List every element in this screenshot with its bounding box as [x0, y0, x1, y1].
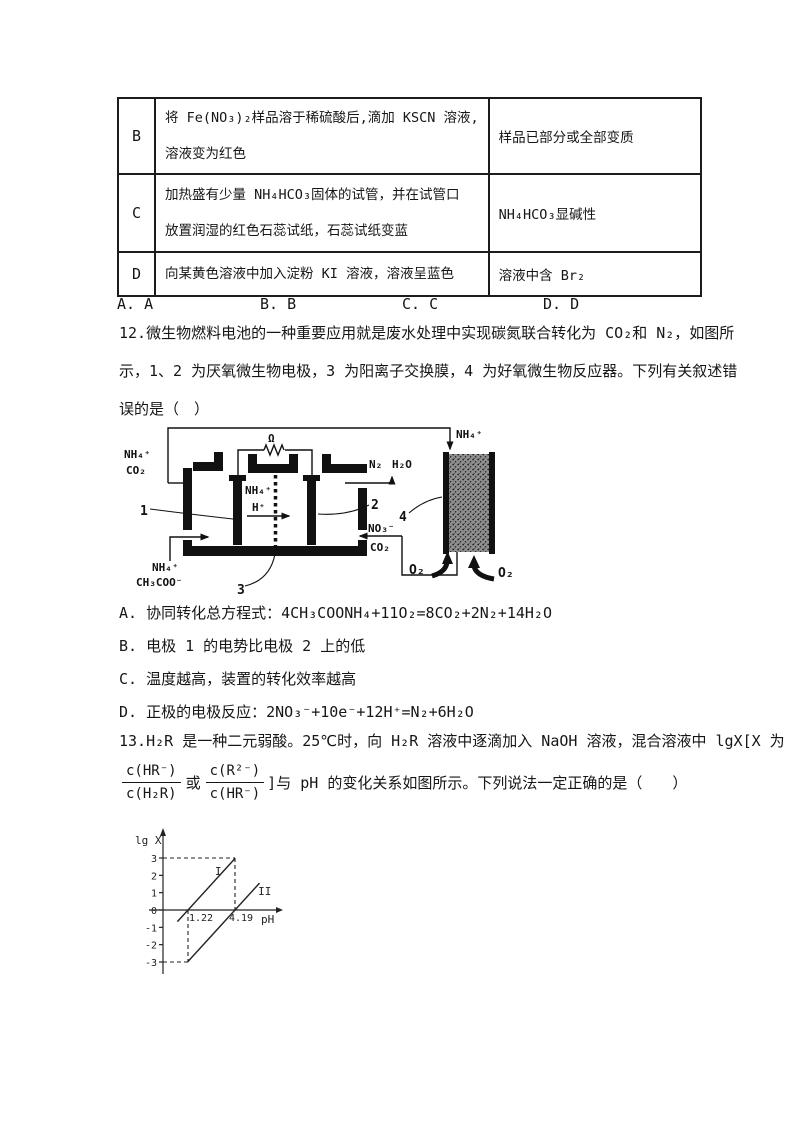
label-membrane-3: 3 — [237, 583, 245, 598]
option-b-line: B.电极 1 的电势比电极 2 上的低 — [119, 630, 719, 663]
row-label-text: C — [132, 204, 141, 222]
cell-top-port-middle-tab-l — [248, 454, 257, 473]
x-axis-label: pH — [261, 913, 274, 926]
question-13-tail: ]与 pH 的变化关系如图所示。下列说法一定正确的是（ ） — [267, 772, 687, 793]
pointer-membrane — [245, 554, 275, 586]
option-label: A. — [119, 604, 137, 622]
or-word: 或 — [186, 772, 201, 793]
fraction-numerator: c(R²⁻) — [206, 760, 265, 783]
label-no3: NO₃⁻ — [368, 522, 395, 535]
option-text: 协同转化总方程式：4CH₃COONH₄+11O₂=8CO₂+2N₂+14H₂O — [146, 604, 552, 622]
fraction-r-hr: c(R²⁻) c(HR⁻) — [206, 760, 265, 805]
table-row-b: B 将 Fe(NO₃)₂样品溶于稀硫酸后,滴加 KSCN 溶液, 溶液变为红色 … — [118, 98, 701, 174]
answer-option-c: C. C — [402, 295, 438, 313]
phenomenon-line: 向某黄色溶液中加入淀粉 KI 溶液，溶液呈蓝色 — [165, 256, 479, 292]
series-label-II: II — [258, 885, 271, 898]
o2-arrow-right-head — [468, 555, 480, 568]
y-axis-label: lg X — [135, 834, 162, 847]
label-h2o: H₂O — [392, 458, 412, 471]
table-row-d: D 向某黄色溶液中加入淀粉 KI 溶液，溶液呈蓝色 溶液中含 Br₂ — [118, 252, 701, 296]
cell-left-wall — [183, 468, 192, 530]
phenomenon-cell: 将 Fe(NO₃)₂样品溶于稀硫酸后,滴加 KSCN 溶液, 溶液变为红色 — [155, 98, 489, 174]
question-12-stem: 12.微生物燃料电池的一种重要应用就是废水处理中实现碳氮联合转化为 CO₂和 N… — [119, 314, 719, 428]
option-c-line: C.温度越高，装置的转化效率越高 — [119, 663, 719, 696]
electrode-1-tab — [229, 475, 246, 481]
row-label-text: D — [132, 265, 141, 283]
fraction-denominator: c(H₂R) — [122, 783, 181, 805]
cell-top-port-middle-tab-r — [289, 454, 298, 473]
x-value-label: 1.22 — [189, 913, 213, 924]
option-text: 电极 1 的电势比电极 2 上的低 — [146, 637, 365, 655]
conclusion-text: NH₄HCO₃显碱性 — [499, 207, 596, 223]
conclusion-text: 样品已部分或全部变质 — [499, 130, 634, 146]
answer-option-a: A. A — [117, 295, 153, 313]
o2-arrow-left — [432, 562, 447, 576]
phenomenon-line: 将 Fe(NO₃)₂样品溶于稀硫酸后,滴加 KSCN 溶液, — [165, 100, 479, 136]
phenomenon-cell: 加热盛有少量 NH₄HCO₃固体的试管，并在试管口 放置润湿的红色石蕊试纸，石蕊… — [155, 174, 489, 252]
y-tick-label: 3 — [151, 854, 157, 865]
series-label-I: I — [215, 865, 222, 878]
evidence-table: B 将 Fe(NO₃)₂样品溶于稀硫酸后,滴加 KSCN 溶液, 溶液变为红色 … — [117, 97, 702, 297]
fraction-denominator: c(HR⁻) — [206, 783, 265, 805]
question-13-fraction-line: c(HR⁻) c(H₂R) 或 c(R²⁻) c(HR⁻) ]与 pH 的变化关… — [119, 760, 687, 805]
phenomenon-line: 溶液变为红色 — [165, 136, 479, 172]
question-line: 12.微生物燃料电池的一种重要应用就是废水处理中实现碳氮联合转化为 CO₂和 N… — [119, 314, 719, 352]
y-tick-label: 1 — [151, 889, 157, 900]
reactor-left-bar — [443, 452, 449, 554]
y-tick-label: -3 — [145, 958, 157, 969]
label-n2: N₂ — [369, 458, 382, 471]
table-row-c: C 加热盛有少量 NH₄HCO₃固体的试管，并在试管口 放置润湿的红色石蕊试纸，… — [118, 174, 701, 252]
electrode-2-tab — [303, 475, 320, 481]
answer-option-d: D. D — [543, 295, 579, 313]
fraction-numerator: c(HR⁻) — [122, 760, 181, 783]
label-electrode-2: 2 — [371, 498, 379, 513]
label-reactor-4: 4 — [399, 510, 407, 525]
cell-right-wall-foot — [358, 540, 367, 556]
conclusion-cell: 样品已部分或全部变质 — [489, 98, 701, 174]
electrode-1 — [233, 481, 242, 545]
label-nh4-mid: NH₄⁺ — [245, 484, 272, 497]
question-13-stem: 13.H₂R 是一种二元弱酸。25℃时，向 H₂R 溶液中逐滴加入 NaOH 溶… — [119, 722, 719, 760]
option-label: C. — [119, 670, 137, 688]
row-label-text: B — [132, 127, 141, 145]
y-tick-label: 2 — [151, 871, 157, 882]
label-co2-recycle: CO₂ — [370, 541, 390, 554]
row-label: D — [118, 252, 155, 296]
row-label: B — [118, 98, 155, 174]
label-resistor-omega: Ω — [268, 432, 275, 445]
pointer-reactor — [409, 497, 442, 513]
row-label: C — [118, 174, 155, 252]
y-tick-label: 0 — [151, 906, 157, 917]
label-ch3coo-feed: CH₃COO⁻ — [136, 576, 182, 589]
label-h-plus: H⁺ — [252, 501, 265, 514]
conclusion-cell: 溶液中含 Br₂ — [489, 252, 701, 296]
x-value-label: 4.19 — [229, 913, 253, 924]
fraction-hr-h2r: c(HR⁻) c(H₂R) — [122, 760, 181, 805]
phenomenon-cell: 向某黄色溶液中加入淀粉 KI 溶液，溶液呈蓝色 — [155, 252, 489, 296]
label-electrode-1: 1 — [140, 504, 148, 519]
question-line: 示，1、2 为厌氧微生物电极，3 为阳离子交换膜，4 为好氧微生物反应器。下列有… — [119, 352, 719, 390]
y-tick-label: -2 — [145, 941, 157, 952]
option-label: B. — [119, 637, 137, 655]
phenomenon-line: 放置润湿的红色石蕊试纸，石蕊试纸变蓝 — [165, 213, 479, 249]
phenomenon-line: 加热盛有少量 NH₄HCO₃固体的试管，并在试管口 — [165, 177, 479, 213]
answer-option-b: B. B — [260, 295, 296, 313]
electrode-2 — [307, 481, 316, 545]
option-text: 正极的电极反应：2NO₃⁻+10e⁻+12H⁺=N₂+6H₂O — [146, 703, 474, 721]
gas-transfer-line — [168, 428, 450, 483]
label-o2-left: O₂ — [409, 563, 425, 578]
option-a-line: A.协同转化总方程式：4CH₃COONH₄+11O₂=8CO₂+2N₂+14H₂… — [119, 597, 719, 630]
label-nh4-feed: NH₄⁺ — [152, 561, 179, 574]
cell-top-port-right-tab — [322, 454, 331, 473]
x-axis-arrow — [276, 907, 283, 913]
fuel-cell-diagram: NH₄⁺ CO₂ NH₄⁺ Ω NH₄⁺ H⁺ N — [112, 418, 532, 608]
conclusion-cell: NH₄HCO₃显碱性 — [489, 174, 701, 252]
gas-out-arrow — [345, 477, 392, 483]
option-text: 温度越高，装置的转化效率越高 — [146, 670, 356, 688]
aerobic-reactor — [449, 454, 489, 552]
label-co2-top-left: CO₂ — [126, 464, 146, 477]
label-o2-right: O₂ — [498, 566, 514, 581]
conclusion-text: 溶液中含 Br₂ — [499, 268, 586, 284]
label-nh4-reactor-in: NH₄⁺ — [456, 428, 483, 441]
label-nh4-top-left: NH₄⁺ — [124, 448, 151, 461]
question-line: 13.H₂R 是一种二元弱酸。25℃时，向 H₂R 溶液中逐滴加入 NaOH 溶… — [119, 722, 719, 760]
reactor-right-bar — [489, 452, 495, 554]
option-label: D. — [119, 703, 137, 721]
resistor-icon — [264, 445, 284, 455]
question-12-options: A.协同转化总方程式：4CH₃COONH₄+11O₂=8CO₂+2N₂+14H₂… — [119, 597, 719, 729]
exam-page: B 将 Fe(NO₃)₂样品溶于稀硫酸后,滴加 KSCN 溶液, 溶液变为红色 … — [0, 0, 794, 1123]
cell-top-port-left-tab — [214, 452, 223, 471]
ph-lgx-graph: lg XpH3210-1-2-3III1.224.19 — [123, 826, 298, 978]
y-tick-label: -1 — [145, 923, 157, 934]
